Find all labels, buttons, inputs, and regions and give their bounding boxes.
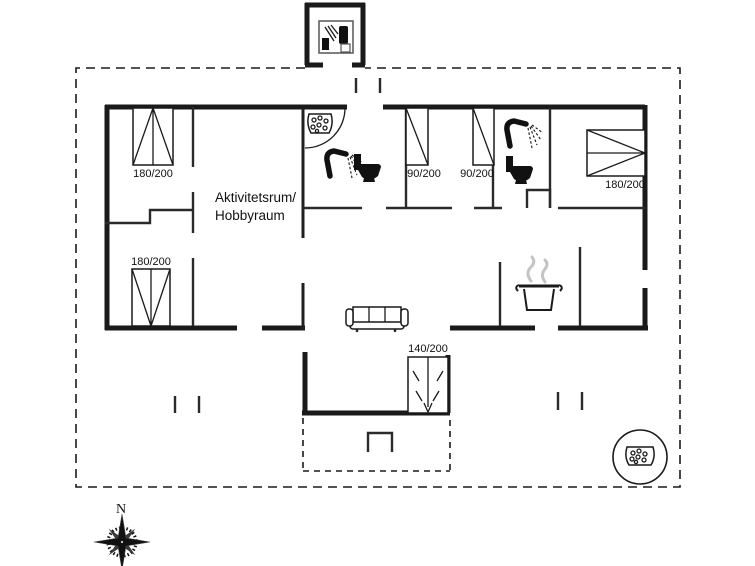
room-label-activity: Aktivitetsrum/ Hobbyraum: [215, 190, 296, 223]
compass-north-label: N: [116, 502, 126, 517]
bed-label: 180/200: [131, 256, 171, 268]
terrace-dashed: [303, 418, 450, 471]
duct-wall: [527, 190, 550, 208]
cooking-pot-icon: [516, 257, 562, 310]
bed-label: 180/200: [605, 179, 645, 191]
annex-bathroom-icon: [319, 21, 353, 53]
bed-double-top-left: 180/200: [133, 108, 173, 180]
bed-label: 90/200: [460, 168, 494, 180]
svg-text:Aktivitetsrum/: Aktivitetsrum/: [215, 190, 296, 205]
bed-label: 140/200: [408, 343, 448, 355]
bed-single-1: 90/200: [406, 108, 441, 180]
bed-label: 180/200: [133, 168, 173, 180]
steam-icon: [543, 260, 548, 282]
steam-icon: [528, 257, 534, 281]
hot-tub-icon: [613, 430, 667, 484]
svg-text:Hobbyraum: Hobbyraum: [215, 208, 285, 223]
toilet-icon-bath1: [354, 154, 381, 182]
toilet-icon-bath2: [506, 156, 533, 184]
compass-rose: N: [94, 502, 150, 566]
bed-double-right: 180/200: [587, 130, 645, 191]
floor-plan-page: 180/200 180/200 90/200 90/200 180/200 14…: [0, 0, 755, 566]
post-marks: [175, 78, 582, 413]
bed-double-bottom-left: 180/200: [131, 256, 171, 326]
annex-outbuilding: [305, 3, 365, 65]
bed-single-2: 90/200: [460, 108, 494, 180]
exterior-walls: [105, 105, 648, 330]
terrace-step: [368, 433, 392, 452]
shower-icon-bath2: [507, 121, 543, 148]
sofa-icon: [346, 307, 408, 329]
bed-label: 90/200: [407, 168, 441, 180]
interior-walls: [105, 107, 645, 330]
whirlpool-tub-icon: [308, 114, 332, 133]
bed-alcove: 140/200: [408, 343, 448, 413]
floor-plan-canvas: 180/200 180/200 90/200 90/200 180/200 14…: [0, 0, 755, 566]
